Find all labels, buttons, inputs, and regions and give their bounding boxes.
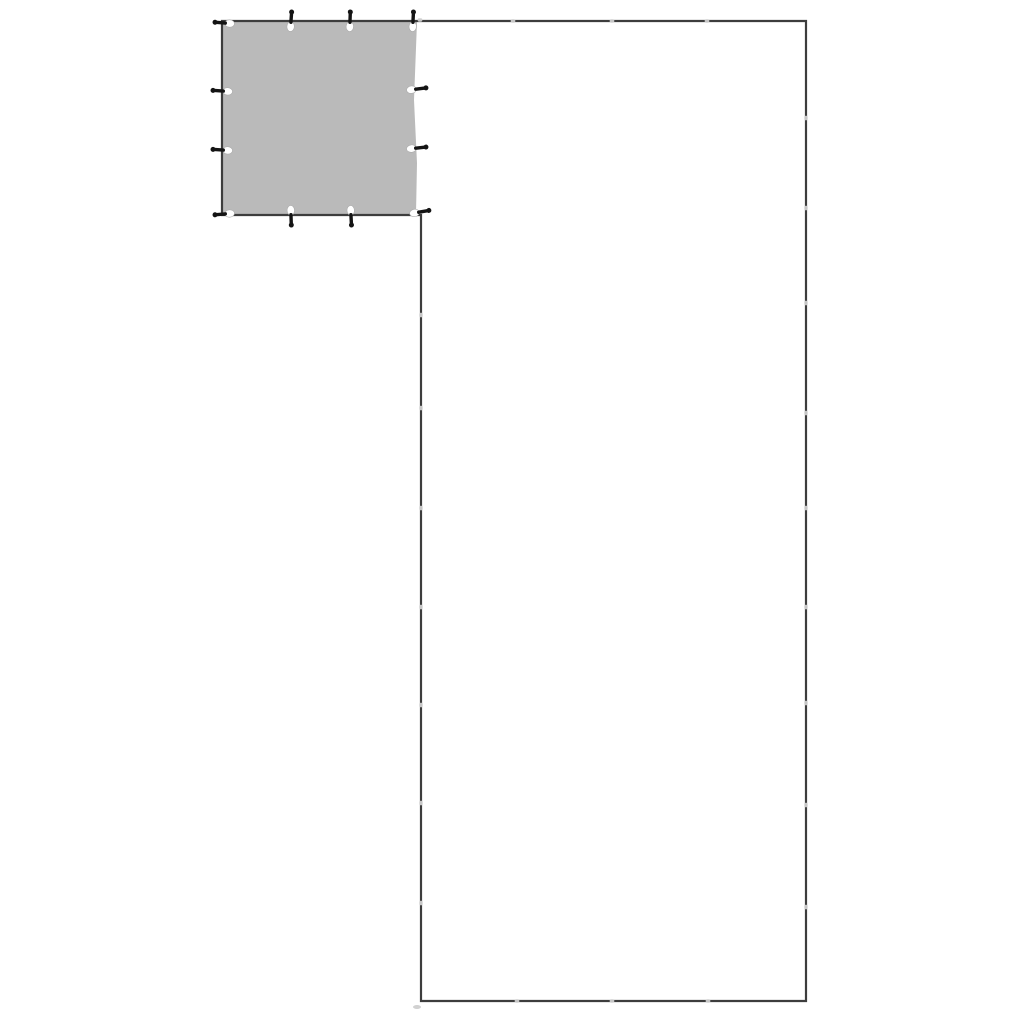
tube-connector xyxy=(419,703,422,708)
tube-connector xyxy=(511,19,516,22)
tube-connector xyxy=(804,301,807,306)
background xyxy=(0,0,1024,1024)
tube-connector xyxy=(419,406,422,411)
tube-connector xyxy=(419,313,422,318)
tube-connector xyxy=(804,701,807,706)
tube-connector xyxy=(418,18,423,21)
tube-connector xyxy=(804,803,807,808)
tube-connector xyxy=(804,411,807,416)
product-drawing-page xyxy=(0,0,1024,1024)
tube-connector xyxy=(610,19,615,22)
tube-connector xyxy=(419,506,422,511)
tube-connector xyxy=(706,999,711,1002)
tarp-panel xyxy=(223,22,417,214)
tube-connector xyxy=(804,605,807,610)
tube-connector xyxy=(419,605,422,610)
kennel-outline-diagram xyxy=(0,0,1024,1024)
tube-connector xyxy=(419,901,422,906)
tube-connector xyxy=(804,506,807,511)
tube-connector xyxy=(419,801,422,806)
tube-connector xyxy=(705,19,710,22)
tube-connector xyxy=(804,206,807,211)
tube-connector xyxy=(515,999,520,1002)
tube-connector xyxy=(610,999,615,1002)
tube-connector xyxy=(804,116,807,121)
tube-connector xyxy=(804,905,807,910)
smudge-mark xyxy=(413,1005,421,1009)
